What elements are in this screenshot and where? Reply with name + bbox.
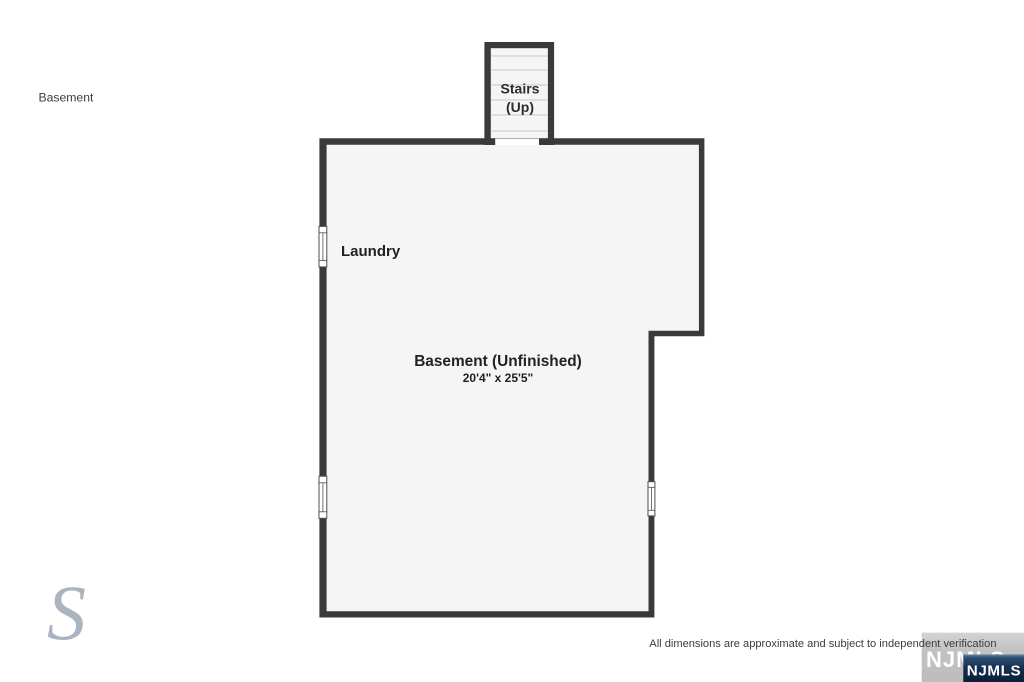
svg-text:S: S [47, 569, 86, 656]
svg-text:NJMLS: NJMLS [967, 662, 1021, 679]
svg-text:Stairs: Stairs [501, 81, 540, 97]
svg-text:Basement (Unfinished): Basement (Unfinished) [414, 353, 582, 370]
svg-text:Basement: Basement [39, 91, 94, 105]
svg-text:All dimensions are approximate: All dimensions are approximate and subje… [649, 638, 996, 650]
svg-text:(Up): (Up) [506, 99, 534, 115]
svg-text:Laundry: Laundry [341, 243, 401, 260]
svg-text:20'4" x 25'5": 20'4" x 25'5" [463, 371, 533, 385]
